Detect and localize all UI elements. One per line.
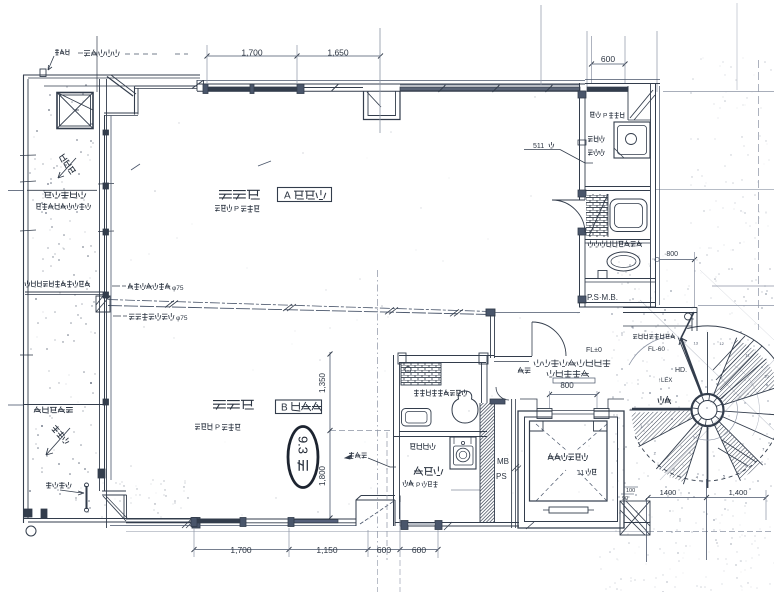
svg-text:1,700: 1,700 [230, 545, 252, 555]
svg-text:511: 511 [533, 143, 544, 150]
svg-text:PS: PS [496, 472, 507, 481]
svg-text:100: 100 [626, 488, 635, 494]
svg-text:A: A [284, 191, 291, 202]
svg-text:600: 600 [601, 54, 615, 64]
svg-text:P: P [215, 423, 220, 432]
svg-text:1,150: 1,150 [316, 545, 338, 555]
svg-text:13: 13 [693, 341, 698, 346]
svg-text:↑LEX: ↑LEX [658, 378, 672, 384]
svg-text:P: P [416, 482, 420, 489]
svg-text:800: 800 [560, 381, 574, 390]
svg-text:1,650: 1,650 [327, 48, 349, 58]
svg-text:1,800: 1,800 [318, 465, 327, 486]
svg-text:P: P [234, 204, 239, 213]
svg-text:10: 10 [764, 374, 769, 379]
svg-text:1,400: 1,400 [729, 488, 748, 497]
svg-text:1,700: 1,700 [241, 48, 263, 58]
svg-text:P: P [603, 113, 607, 120]
svg-text:FL±0: FL±0 [586, 347, 602, 354]
svg-text:HD.: HD. [675, 367, 687, 374]
svg-text:1400: 1400 [660, 488, 677, 497]
svg-text:9.3: 9.3 [296, 436, 311, 454]
svg-text:·800: ·800 [664, 251, 678, 258]
svg-text:600: 600 [412, 545, 426, 555]
svg-text:φ75: φ75 [172, 285, 184, 292]
svg-text:B: B [281, 403, 288, 414]
svg-text:600: 600 [377, 545, 391, 555]
svg-text:12: 12 [719, 341, 724, 346]
svg-text:MB: MB [497, 457, 509, 466]
svg-text:φ75: φ75 [176, 315, 188, 322]
svg-text:FL-60: FL-60 [648, 346, 665, 353]
svg-text:1,350: 1,350 [318, 372, 327, 393]
svg-text:P.S·M.B.: P.S·M.B. [587, 293, 618, 302]
svg-text:11: 11 [577, 470, 584, 477]
